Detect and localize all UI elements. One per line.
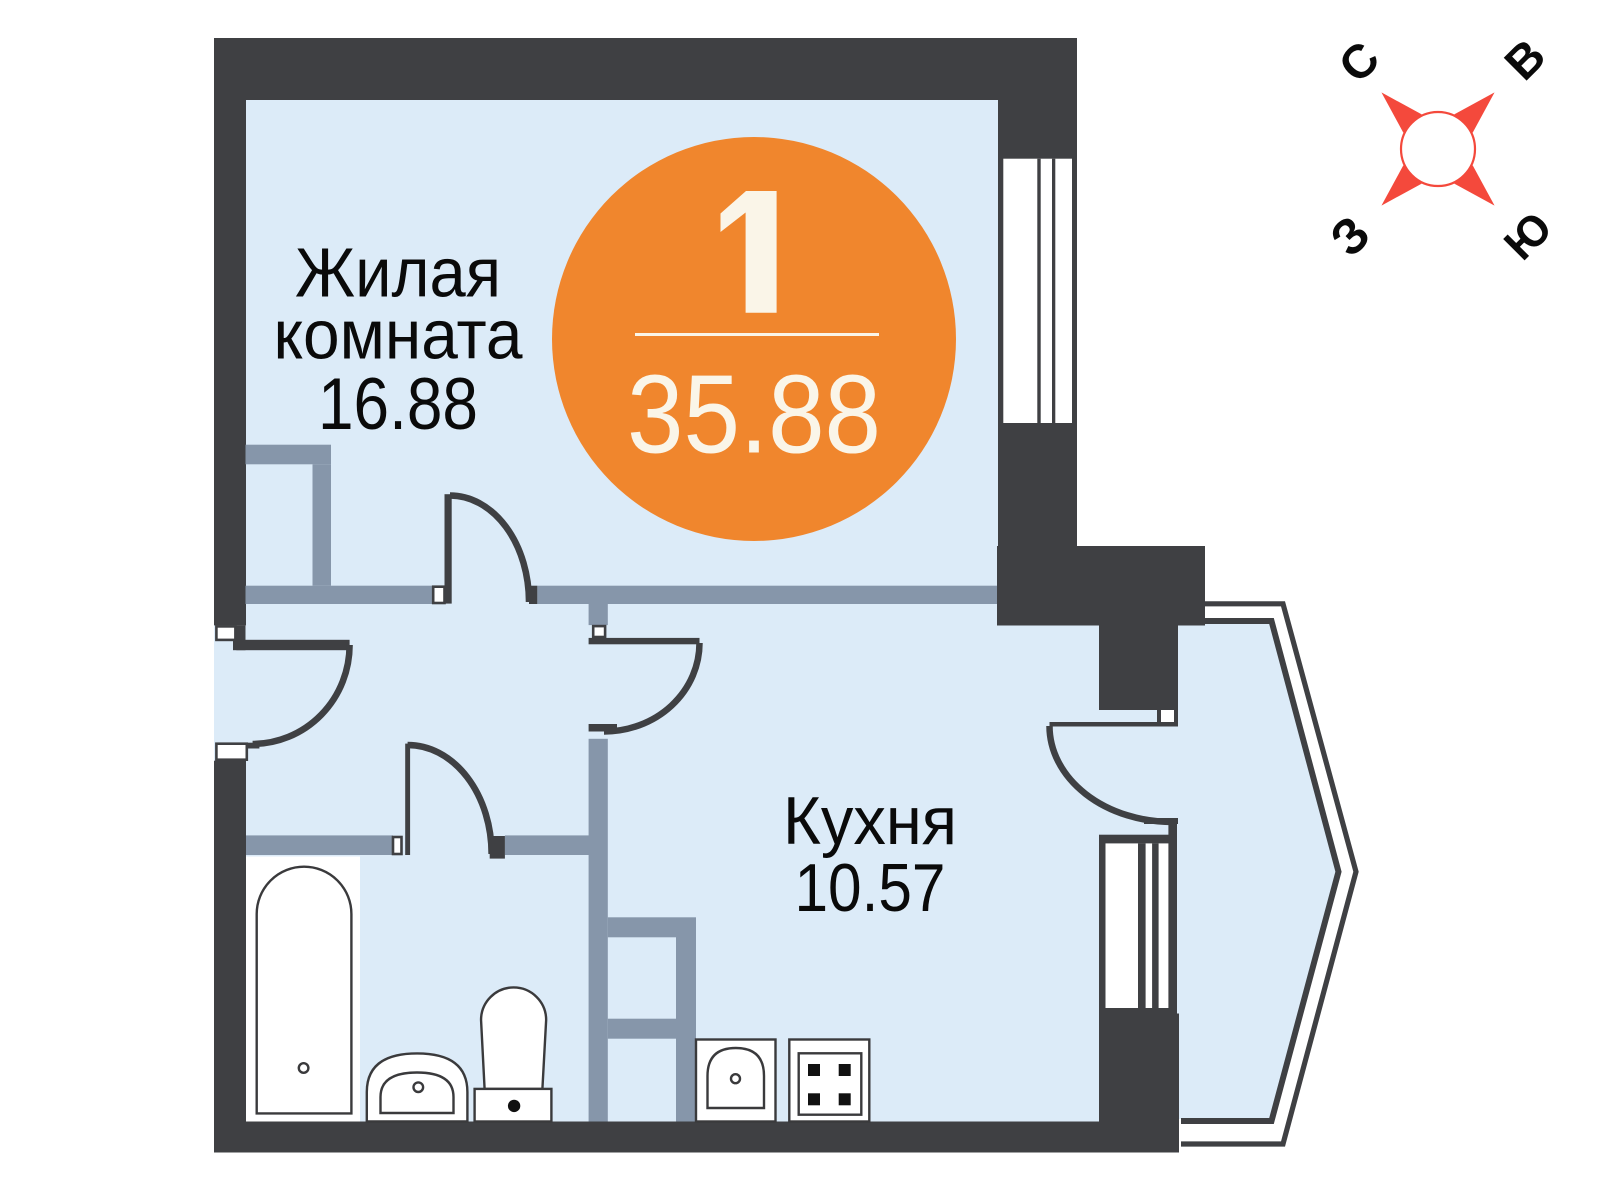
svg-text:35.88: 35.88 xyxy=(627,353,881,477)
svg-text:10.57: 10.57 xyxy=(795,850,946,926)
svg-text:16.88: 16.88 xyxy=(318,364,478,445)
svg-text:Кухня: Кухня xyxy=(783,783,957,859)
svg-text:комната: комната xyxy=(274,296,523,374)
